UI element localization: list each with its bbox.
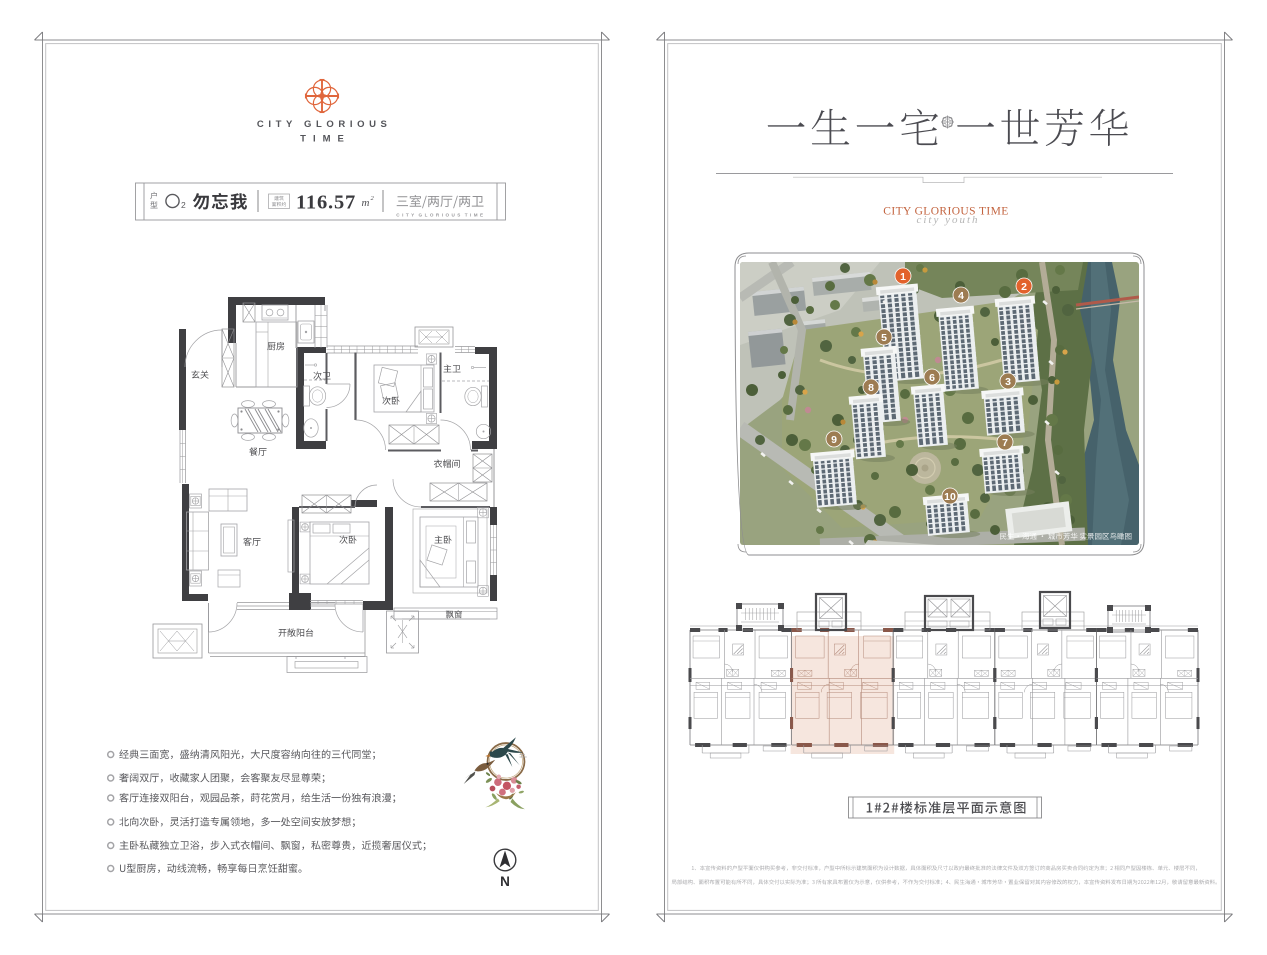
svg-text:9: 9 [831,434,837,446]
svg-text:N: N [500,874,510,889]
svg-text:2: 2 [1021,281,1027,293]
svg-text:6: 6 [929,372,935,384]
svg-text:CITY GLORIOUS: CITY GLORIOUS [257,119,392,130]
svg-text:3: 3 [1005,376,1011,388]
svg-text:4: 4 [958,290,964,302]
svg-text:116.57: 116.57 [296,192,356,214]
svg-text:7: 7 [1002,437,1008,449]
svg-text:5: 5 [881,332,887,344]
svg-text:10: 10 [944,491,956,503]
svg-text:8: 8 [868,382,874,394]
svg-text:2: 2 [371,195,375,202]
svg-text:2: 2 [181,200,186,210]
svg-text:m: m [362,197,370,209]
svg-text:1: 1 [900,271,906,283]
svg-text:city youth: city youth [916,214,979,226]
svg-text:C I T Y G L O R I O U S T I: C I T Y G L O R I O U S T I M E [396,213,483,218]
svg-text:TIME: TIME [300,134,351,145]
